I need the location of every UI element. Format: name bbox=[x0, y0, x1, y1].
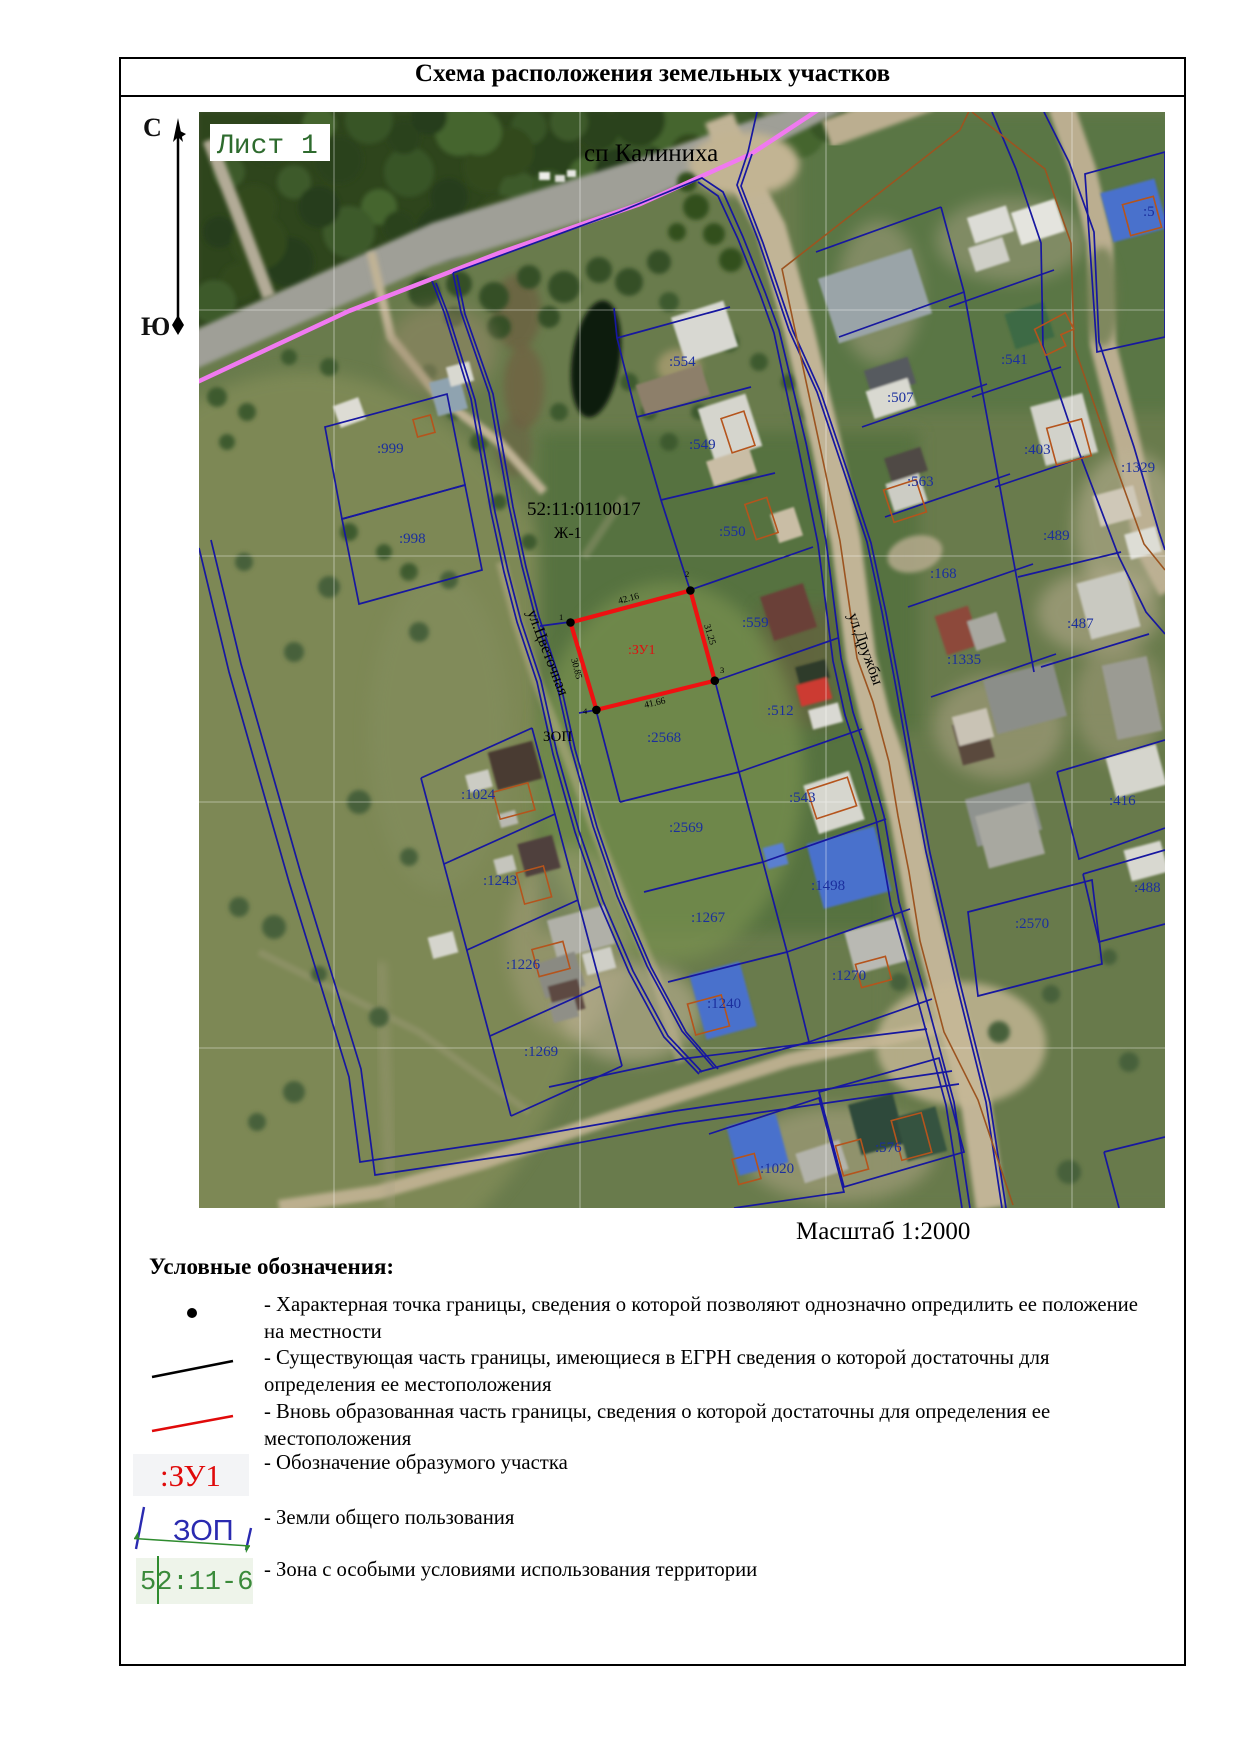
svg-text::1240: :1240 bbox=[707, 996, 741, 1012]
svg-text::488: :488 bbox=[1134, 880, 1161, 896]
svg-text:Лист 1: Лист 1 bbox=[216, 131, 318, 162]
svg-text::559: :559 bbox=[742, 615, 769, 631]
svg-text::1329: :1329 bbox=[1121, 460, 1155, 476]
svg-text::507: :507 bbox=[887, 390, 914, 406]
svg-text::563: :563 bbox=[907, 474, 934, 490]
svg-text::512: :512 bbox=[767, 703, 794, 719]
svg-text::550: :550 bbox=[719, 524, 746, 540]
svg-text:52:11:0110017: 52:11:0110017 bbox=[527, 499, 641, 520]
svg-text::549: :549 bbox=[689, 437, 716, 453]
svg-text:ЗОП: ЗОП bbox=[173, 1515, 234, 1547]
svg-text::168: :168 bbox=[930, 566, 957, 582]
svg-text::1335: :1335 bbox=[947, 652, 981, 668]
svg-text:сп Калиниха: сп Калиниха bbox=[584, 140, 718, 167]
svg-text::416: :416 bbox=[1109, 793, 1136, 809]
svg-text::2568: :2568 bbox=[647, 730, 681, 746]
svg-text:ЗОП: ЗОП bbox=[543, 729, 572, 745]
svg-text::ЗУ1: :ЗУ1 bbox=[628, 643, 655, 658]
svg-text::1267: :1267 bbox=[691, 910, 726, 926]
svg-text::998: :998 bbox=[399, 531, 426, 547]
svg-text::554: :554 bbox=[669, 354, 696, 370]
svg-text::576: :576 bbox=[875, 1140, 902, 1156]
svg-text:Ю: Ю bbox=[141, 312, 170, 341]
svg-text:2: 2 bbox=[685, 569, 689, 579]
svg-text::1269: :1269 bbox=[524, 1044, 558, 1060]
svg-text::543: :543 bbox=[789, 790, 816, 806]
svg-text:Ж-1: Ж-1 bbox=[554, 525, 582, 542]
svg-text:С: С bbox=[143, 113, 162, 142]
svg-text::1270: :1270 bbox=[832, 968, 866, 984]
svg-text::2569: :2569 bbox=[669, 820, 703, 836]
svg-text::489: :489 bbox=[1043, 528, 1070, 544]
svg-text::487: :487 bbox=[1067, 616, 1094, 632]
svg-text::1243: :1243 bbox=[483, 873, 517, 889]
svg-text::2570: :2570 bbox=[1015, 916, 1049, 932]
svg-text::1024: :1024 bbox=[461, 787, 496, 803]
svg-text::1498: :1498 bbox=[811, 878, 845, 894]
svg-text:1: 1 bbox=[559, 612, 563, 622]
svg-text::1226: :1226 bbox=[506, 957, 541, 973]
svg-text::1020: :1020 bbox=[760, 1161, 794, 1177]
svg-text::403: :403 bbox=[1024, 442, 1051, 458]
svg-text::999: :999 bbox=[377, 441, 404, 457]
svg-text::541: :541 bbox=[1001, 352, 1028, 368]
svg-text::5: :5 bbox=[1143, 204, 1155, 220]
svg-text:3: 3 bbox=[720, 665, 724, 675]
